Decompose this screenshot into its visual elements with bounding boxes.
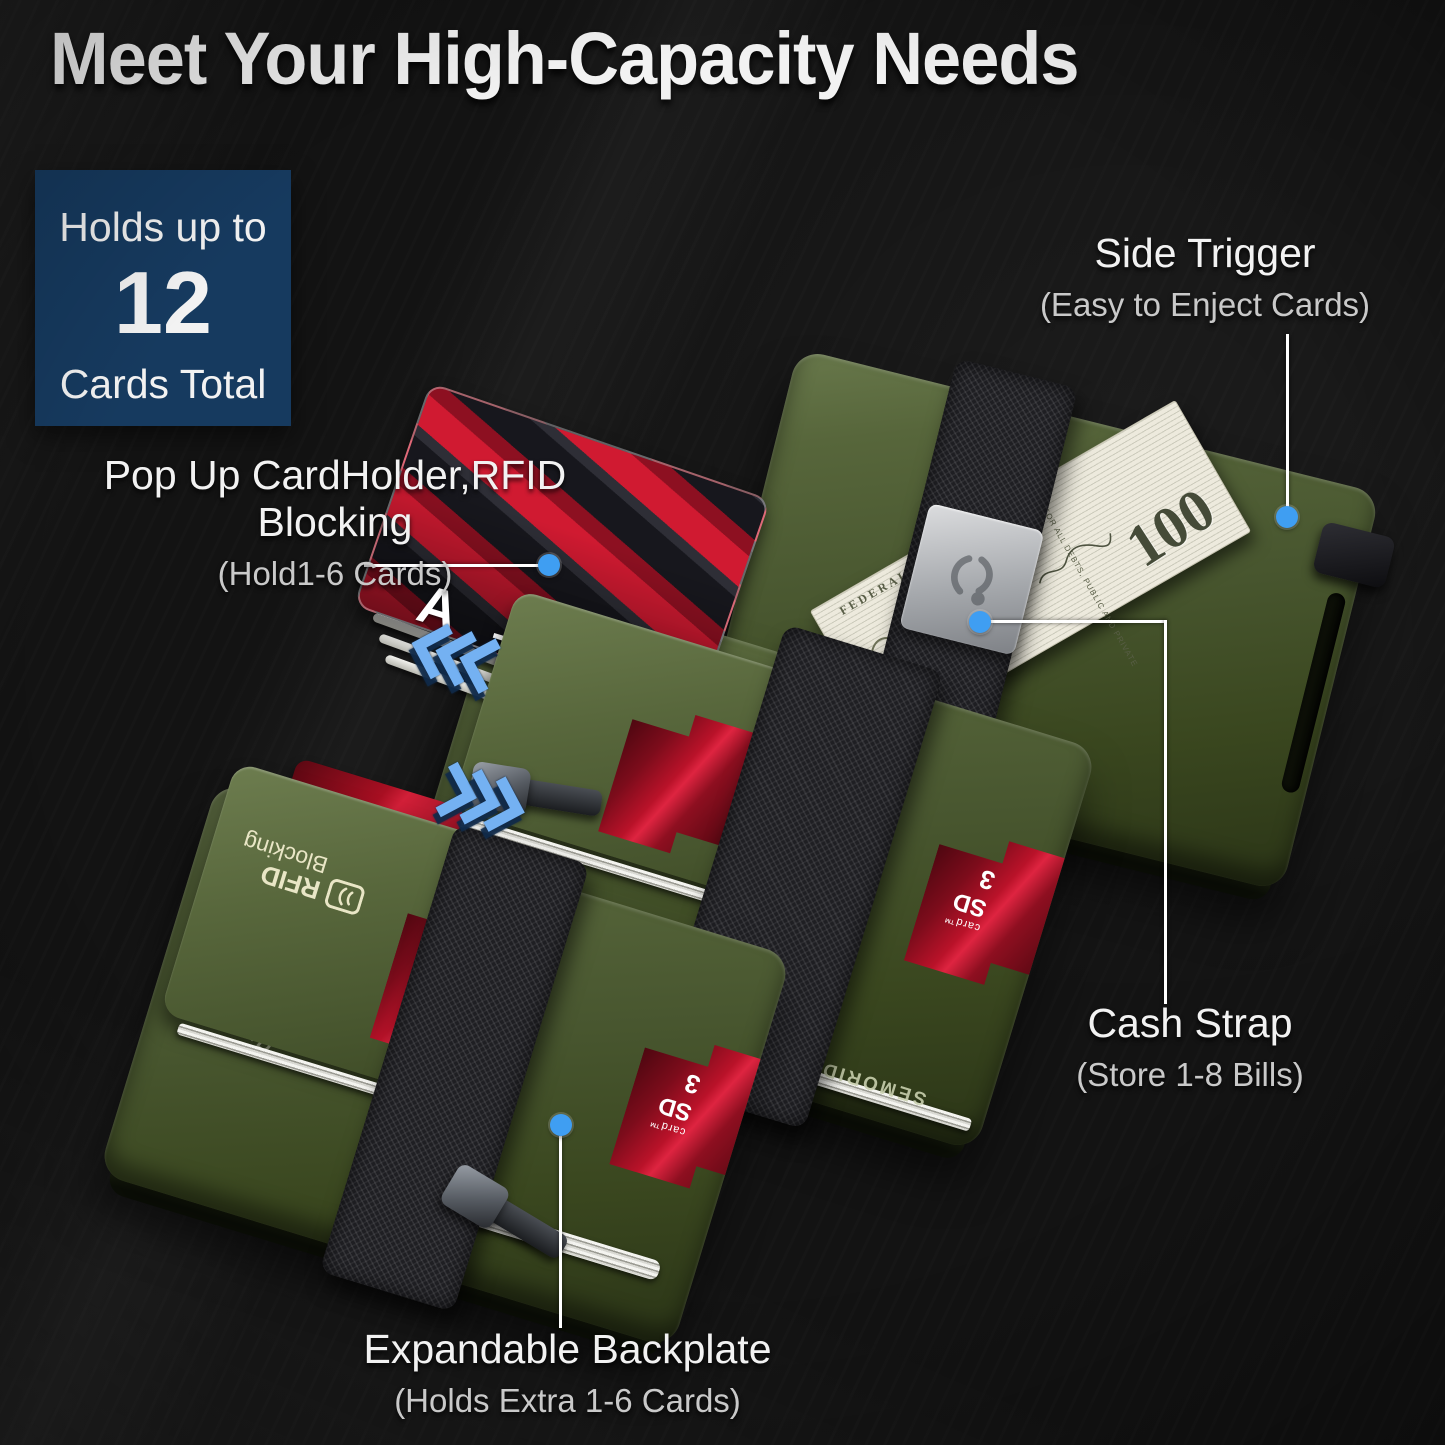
rfid-print: RFID Blocking — [232, 828, 373, 916]
badge-number: 12 — [35, 259, 291, 347]
product-infographic: Meet Your High-Capacity Needs Holds up t… — [0, 0, 1445, 1445]
capacity-badge: Holds up to 12 Cards Total — [35, 170, 291, 426]
bill-signature — [1030, 525, 1120, 591]
page-title: Meet Your High-Capacity Needs — [50, 16, 1430, 101]
callout-title: Cash Strap — [995, 1000, 1385, 1047]
callout-subtitle: (Easy to Enject Cards) — [985, 286, 1425, 324]
callout-subtitle: (Store 1-8 Bills) — [995, 1056, 1385, 1094]
sd-card-print: card™ SD 3 — [648, 1062, 703, 1137]
callout-cash-strap: Cash Strap (Store 1-8 Bills) — [995, 1000, 1385, 1094]
badge-line1: Holds up to — [35, 204, 291, 251]
callout-title: Pop Up CardHolder,RFID Blocking — [28, 452, 642, 546]
callout-side-trigger: Side Trigger (Easy to Enject Cards) — [985, 230, 1425, 324]
brand-logo-icon — [937, 544, 1007, 614]
callout-dot — [969, 611, 991, 633]
callout-title: Side Trigger — [985, 230, 1425, 277]
callout-dot — [1276, 506, 1298, 528]
card-slot-opening — [1280, 591, 1347, 794]
leader-line — [1286, 334, 1289, 508]
callout-dot — [550, 1114, 572, 1136]
callout-subtitle: (Holds Extra 1-6 Cards) — [295, 1382, 840, 1420]
leader-line — [559, 1136, 562, 1328]
callout-dot — [538, 554, 560, 576]
rfid-icon — [323, 877, 366, 916]
badge-line2: Cards Total — [35, 361, 291, 408]
callout-title: Expandable Backplate — [295, 1326, 840, 1373]
leader-line — [1164, 620, 1167, 1004]
leader-line — [988, 620, 1166, 623]
sd-card-print: card™ SD 3 — [943, 858, 998, 933]
backplate-card-window: card™ SD 3 — [904, 822, 1090, 1005]
callout-expandable-backplate: Expandable Backplate (Holds Extra 1-6 Ca… — [295, 1326, 840, 1420]
